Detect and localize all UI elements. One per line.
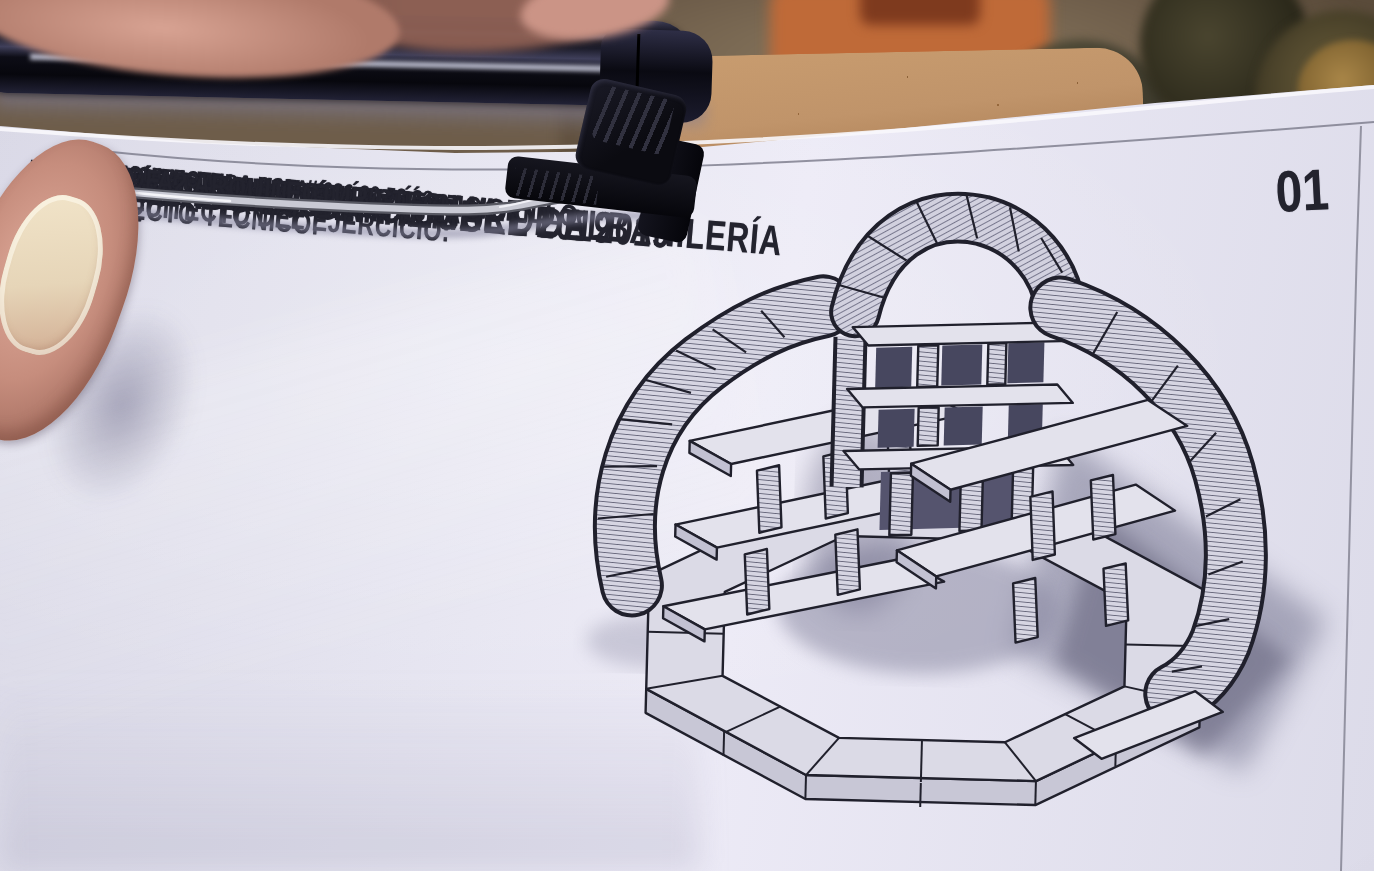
photo-scene: CONCURSO NACIONAL DE ALBAÑILERÍA FERIAS … [0,0,1374,871]
clipboard-wire-clip [0,0,1374,871]
